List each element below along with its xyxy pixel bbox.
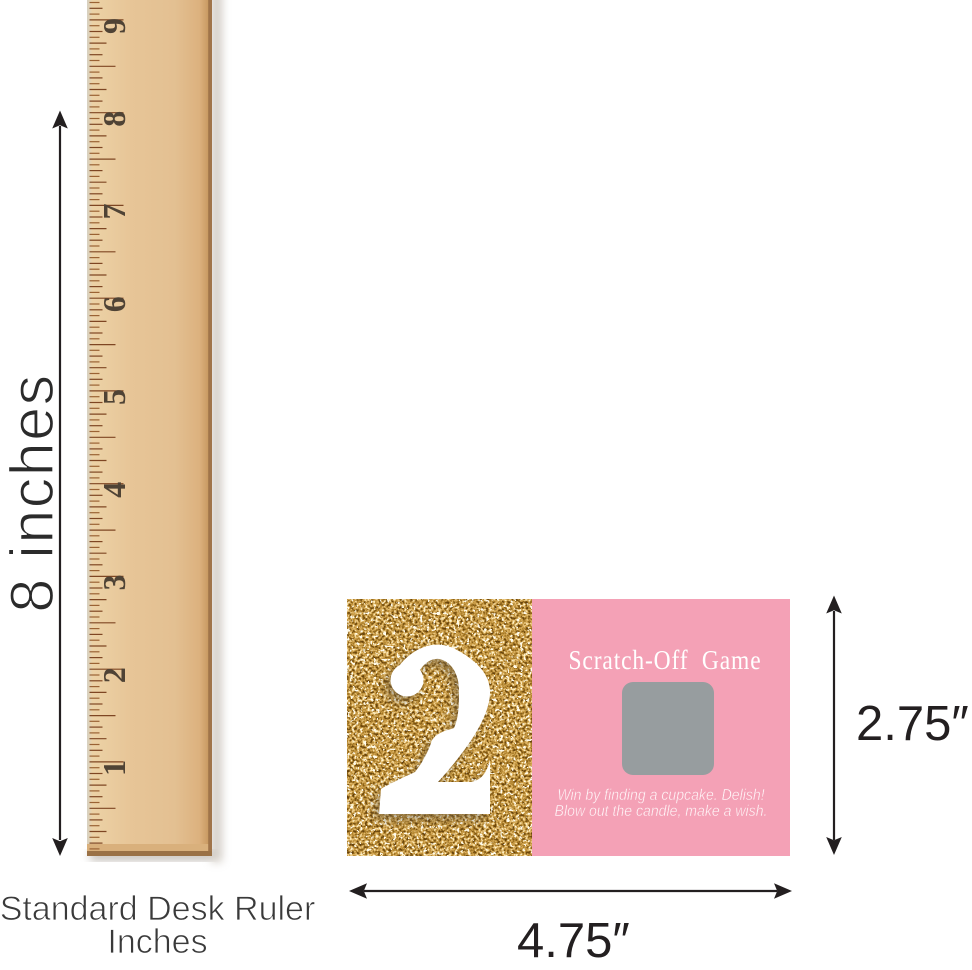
svg-text:5: 5 — [96, 389, 132, 405]
svg-text:6: 6 — [96, 296, 132, 312]
svg-text:8: 8 — [96, 111, 132, 127]
svg-text:2: 2 — [96, 667, 132, 683]
svg-text:9: 9 — [96, 18, 132, 34]
svg-text:4: 4 — [96, 482, 132, 498]
svg-text:7: 7 — [96, 204, 132, 220]
svg-text:3: 3 — [96, 575, 132, 591]
svg-text:1: 1 — [96, 760, 132, 776]
